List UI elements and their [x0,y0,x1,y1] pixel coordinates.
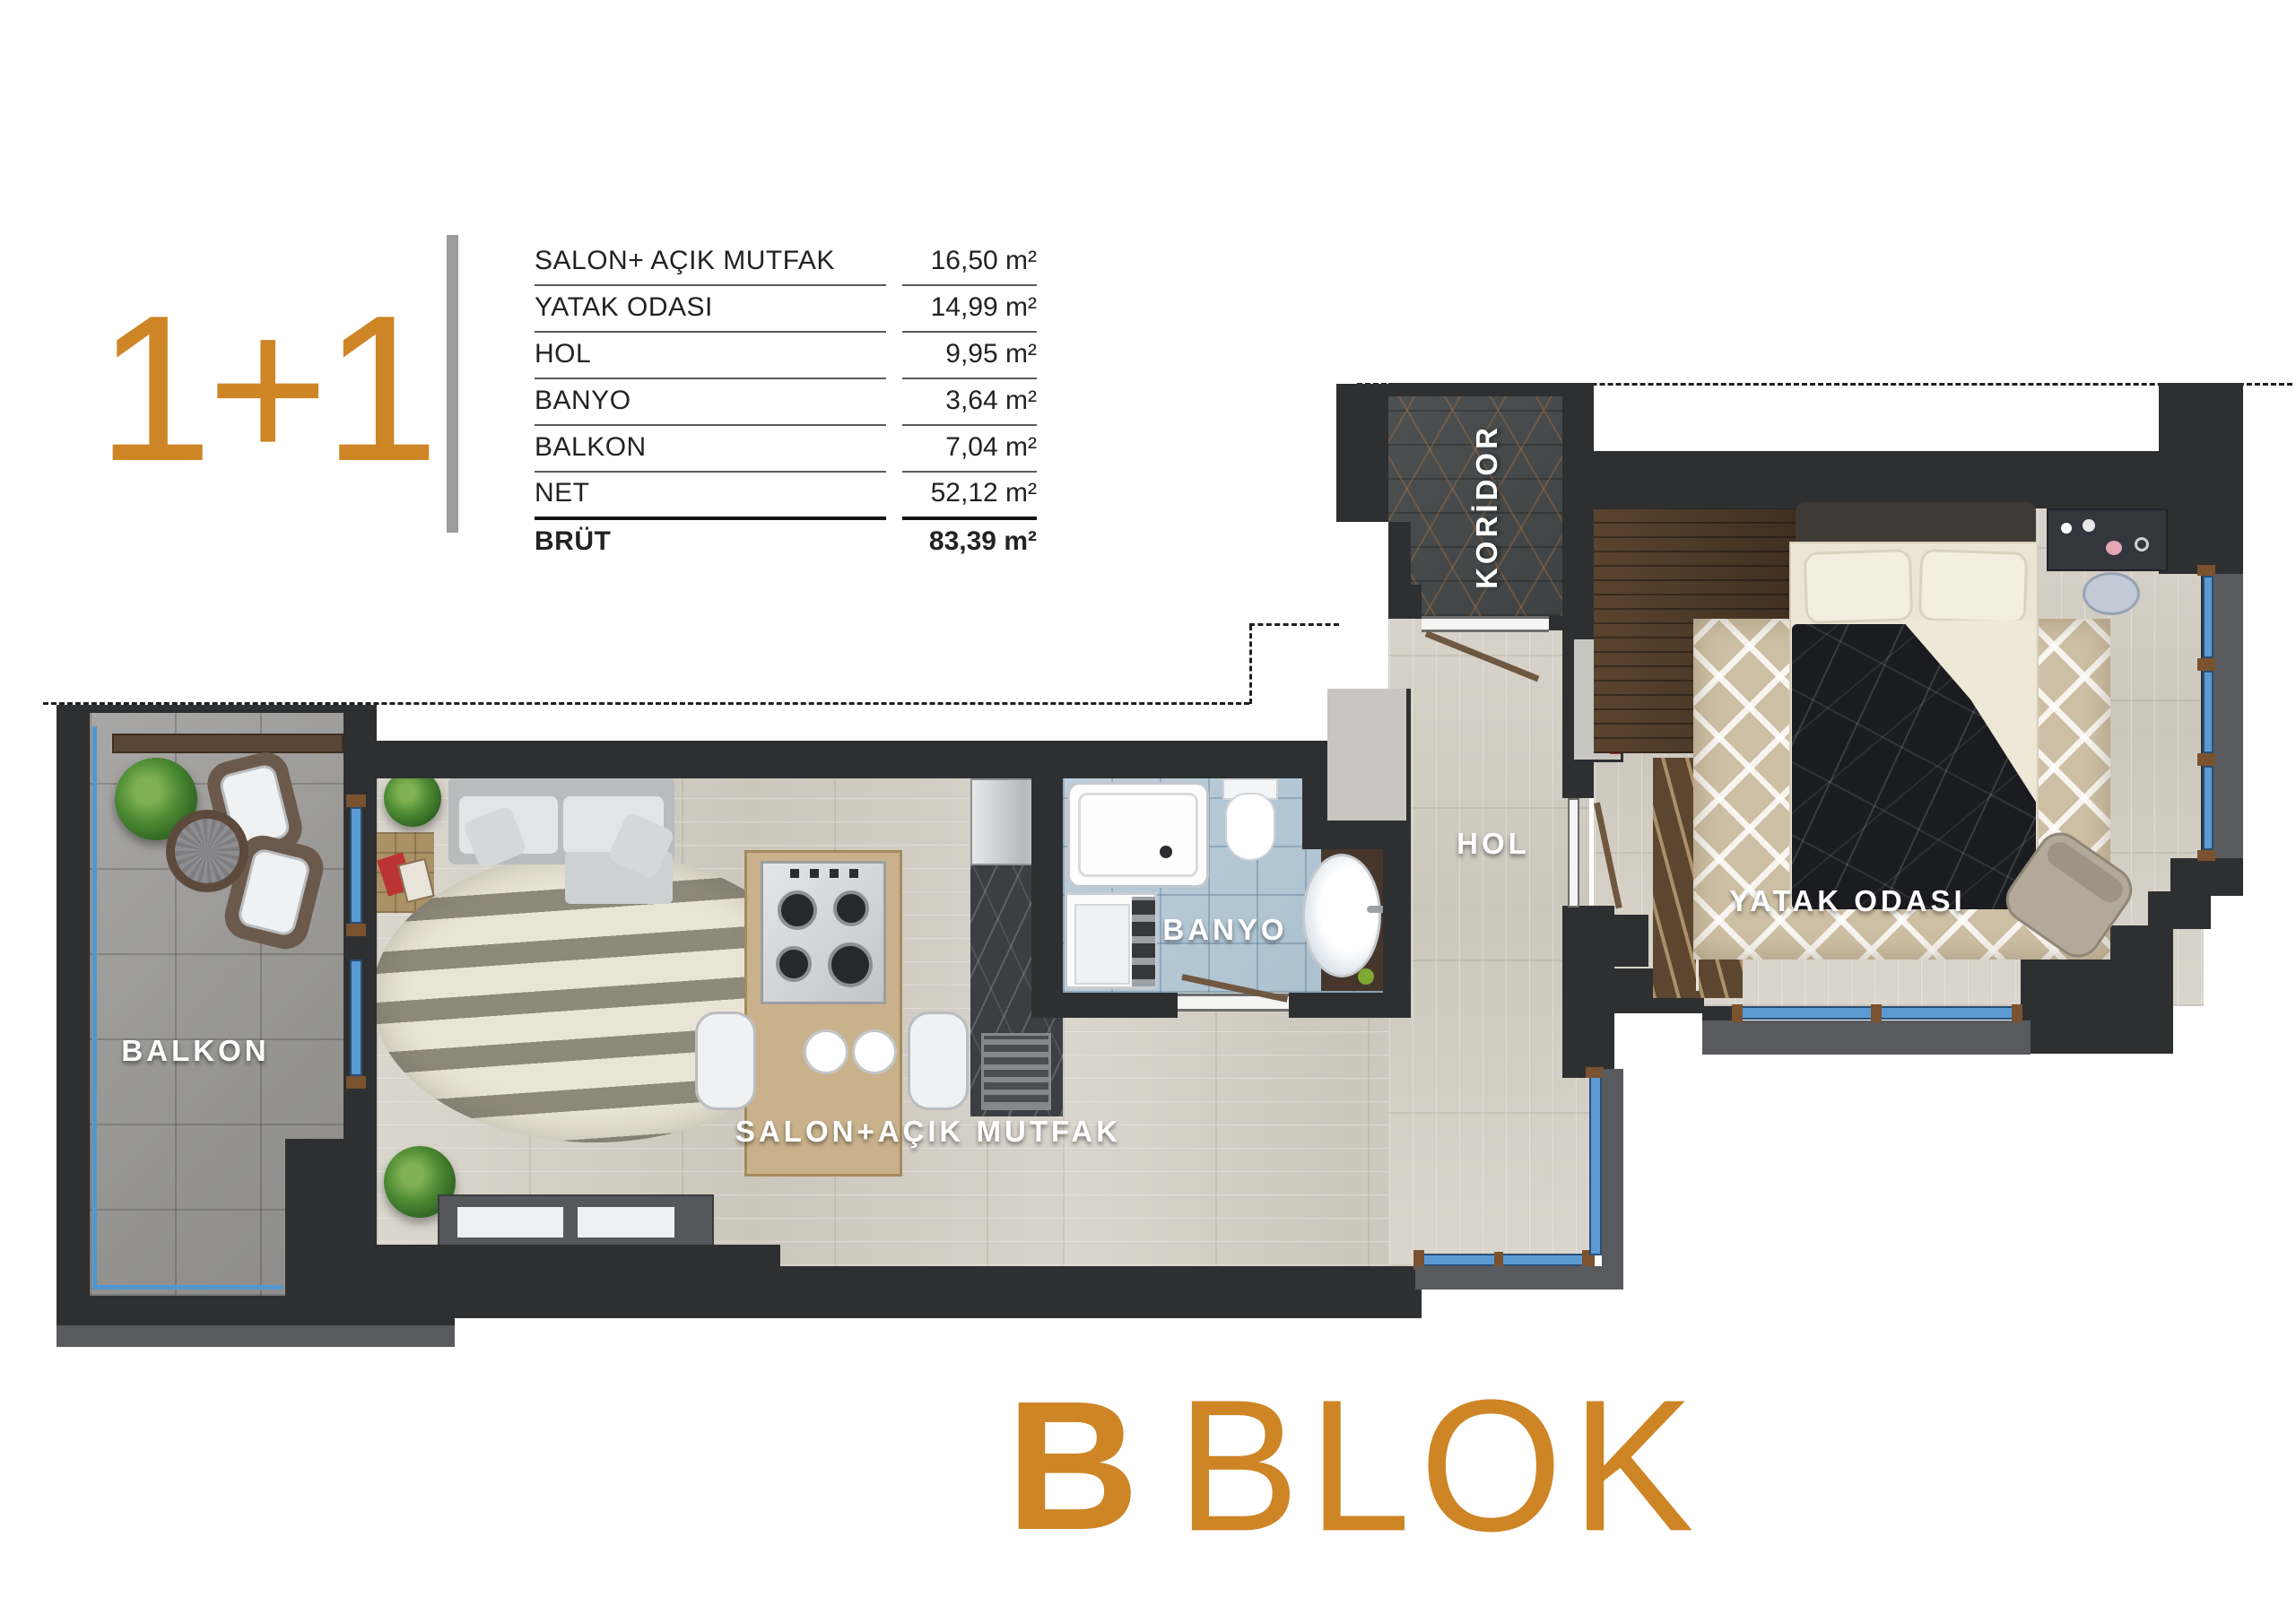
bedroom-door-leaf [1568,798,1579,908]
window-frame [2197,565,2215,576]
area-table: SALON+ AÇIK MUTFAK 16,50 m² YATAK ODASI … [535,239,1037,565]
floor-hol [1388,616,1589,1266]
vanity [2047,508,2168,571]
washer-door [1074,904,1130,985]
ledge [1702,1020,2031,1055]
table-row-net: NET 52,12 m² [535,472,1037,518]
counter-sink-grill [981,1033,1051,1110]
row-value: 14,99 m² [902,284,1037,333]
vanity-item [2135,537,2149,551]
row-value: 3,64 m² [902,378,1037,426]
tv-unit [438,1194,714,1246]
row-label: YATAK ODASI [535,284,886,333]
row-label: NET [535,470,886,520]
vanity-item [2061,523,2072,534]
wall [57,705,90,1347]
window [2203,576,2213,658]
stove [761,861,886,1004]
table-row-brut: BRÜT 83,39 m² [535,518,1037,565]
floor-plan-page: 1+1 SALON+ AÇIK MUTFAK 16,50 m² YATAK OD… [0,0,2296,1624]
soap-dish [1358,968,1374,985]
wall [1388,522,1411,619]
wall [90,705,344,713]
window-frame [1871,1004,1882,1022]
table-top [175,819,239,883]
tufted-ottoman [375,832,434,913]
vanity-stool [2083,572,2140,615]
ledge [1602,1069,1623,1290]
balcony-railing [92,726,97,1290]
label-yatak-odasi: YATAK ODASI [1729,884,1965,918]
window-frame [2197,850,2215,861]
divider-bar [447,235,458,533]
row-value: 9,95 m² [902,331,1037,379]
label-salon: SALON+AÇIK MUTFAK [735,1115,1121,1149]
window [1589,1074,1602,1255]
cushion [236,847,311,937]
row-label: HOL [535,331,886,379]
table-row: BALKON 7,04 m² [535,425,1037,472]
plate [804,1029,848,1074]
label-hol: HOL [1457,827,1530,861]
boundary-dash [1249,623,1339,626]
vanity-item [2083,519,2095,532]
wall [1031,993,1178,1018]
window-frame [346,795,366,807]
wall [1411,585,1422,619]
burner [778,890,817,930]
row-value: 52,12 m² [902,470,1037,520]
block-word: BLOK [1177,1372,1703,1559]
label-balkon: BALKON [121,1034,269,1068]
row-value: 7,04 m² [902,424,1037,473]
vanity-item [2106,541,2122,555]
tv-screen [578,1207,674,1238]
window-frame [1586,1067,1604,1078]
table-row: SALON+ AÇIK MUTFAK 16,50 m² [535,239,1037,285]
bed-headboard [1796,502,2036,543]
window [2203,766,2213,850]
shaft-slab [1327,689,1411,821]
balcony-bench [112,734,344,753]
window-frame [2197,658,2215,671]
balcony-door-glass [350,960,362,1076]
wall [1549,616,1562,630]
window-frame [2012,1004,2022,1022]
washing-machine [1065,892,1157,989]
label-koridor: KORİDOR [1470,424,1504,589]
wall [1562,451,2206,508]
table-row: YATAK ODASI 14,99 m² [535,285,1037,332]
wall [780,1266,1422,1318]
window [2203,671,2213,753]
dining-chair [695,1012,756,1110]
row-label: BRÜT [535,518,886,565]
window-frame [346,1076,366,1089]
wall [344,1245,780,1318]
tv-screen [457,1207,563,1238]
window-frame [1732,1004,1743,1022]
wall [2148,891,2211,929]
wall [1614,915,1648,967]
bed-pillow [1918,549,2029,624]
block-letter: B [1006,1374,1139,1558]
ledge [2213,574,2243,861]
balcony-table [166,810,248,892]
wall [1388,383,1562,396]
burner [776,946,812,982]
sink [1302,854,1381,977]
burner [828,942,873,987]
block-title: B BLOK [1006,1374,1703,1558]
bed-pillow [1804,549,1914,624]
bathtub [1067,782,1209,888]
tub-inner [1078,793,1198,877]
table-row: BANYO 3,64 m² [535,378,1037,425]
table-row: HOL 9,95 m² [535,332,1037,378]
balcony-door-glass [350,807,362,924]
wall [1383,849,1411,1018]
tub-drain [1160,846,1172,858]
ledge [57,1325,455,1347]
stove-knobs [790,869,862,878]
balcony-railing [92,1285,283,1290]
row-label: BANYO [535,378,886,426]
window [1422,1254,1589,1266]
window-frame [2197,753,2215,766]
plate [852,1029,897,1074]
wall [1336,384,1388,522]
row-value: 16,50 m² [902,238,1037,286]
wall [344,741,1327,778]
toilet-bowl [1225,793,1275,861]
plan-type-title: 1+1 [97,285,434,493]
burner [833,890,869,926]
book [397,858,435,903]
wall [2170,858,2243,896]
entry-door-threshold [1422,616,1549,632]
boundary-dash [1249,625,1252,704]
window-frame [346,924,366,936]
row-label: SALON+ AÇIK MUTFAK [535,238,886,286]
row-label: BALKON [535,424,886,473]
wall [2159,383,2243,574]
wall [1031,778,1063,1018]
washer-controls [1132,897,1155,986]
dining-chair [908,1012,969,1110]
row-value: 83,39 m² [902,518,1037,565]
ledge [1415,1266,1623,1290]
label-banyo: BANYO [1162,913,1287,947]
